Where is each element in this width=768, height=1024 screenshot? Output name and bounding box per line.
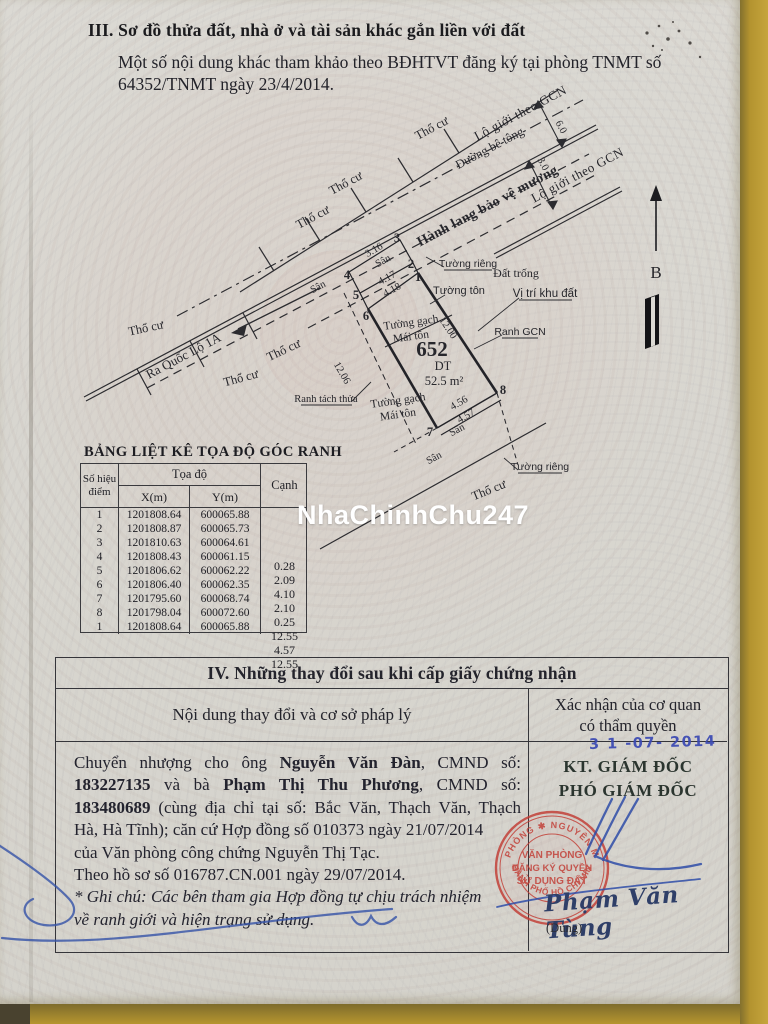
watermark: NhaChinhChu247 bbox=[297, 500, 529, 531]
col-x-header: X(m) bbox=[119, 486, 190, 508]
col-y-header: Y(m) bbox=[190, 486, 260, 508]
header-note-line2: 64352/TNMT ngày 23/4/2014. bbox=[118, 74, 678, 95]
kt-giam-doc-label: KT. GIÁM ĐỐC bbox=[529, 757, 727, 777]
page-fold-line bbox=[29, 82, 33, 1002]
signature-sub-name: (Dung) bbox=[546, 921, 582, 936]
header-note-line1: Một số nội dung khác tham khảo theo BĐHT… bbox=[118, 50, 678, 74]
transfer-text-line: Chuyển nhượng cho ông Nguyễn Văn Đàn, CM… bbox=[74, 752, 521, 774]
transfer-text-line: Theo hồ sơ số 016787.CN.001 ngày 29/07/2… bbox=[74, 864, 521, 886]
coordinate-table-header: Số hiệu điểm Tọa độ X(m) Y(m) Cạnh bbox=[81, 464, 306, 508]
transfer-text-line: 183480689 (cùng địa chỉ tại số: Bắc Văn,… bbox=[74, 797, 521, 819]
section-iv-title: IV. Những thay đổi sau khi cấp giấy chứn… bbox=[56, 658, 728, 689]
transfer-text-line: 183227135 và bà Phạm Thị Thu Phương, CMN… bbox=[74, 774, 521, 796]
col-coords-header: Tọa độ X(m) Y(m) bbox=[119, 464, 261, 507]
table-row: 31201810.63600064.61 bbox=[81, 536, 306, 550]
transfer-text-line: của Văn phòng công chứng Nguyễn Thị Tạc. bbox=[74, 842, 521, 864]
page-edge-right bbox=[740, 0, 768, 1024]
coordinate-table-title: BẢNG LIỆT KÊ TỌA ĐỘ GÓC RANH bbox=[84, 444, 342, 461]
page-edge-bottom bbox=[0, 1004, 740, 1024]
col-change-content-header: Nội dung thay đổi và cơ sở pháp lý bbox=[56, 689, 529, 742]
coordinate-table-body: 11201808.64600065.88 21201808.87600065.7… bbox=[81, 508, 306, 634]
section-iii-title: III. Sơ đồ thửa đất, nhà ở và tài sản kh… bbox=[88, 20, 688, 41]
note-line: về ranh giới và hiện trạng sử dụng. bbox=[74, 909, 521, 931]
table-row: 11201808.64600065.88 bbox=[81, 508, 306, 522]
approval-date-stamp: 3 1 -07- 2014 bbox=[589, 733, 739, 753]
table-row: 21201808.87600065.73 bbox=[81, 522, 306, 536]
note-line: * Ghi chú: Các bên tham gia Hợp đồng tự … bbox=[74, 886, 521, 908]
col-point-header: Số hiệu điểm bbox=[81, 464, 119, 507]
transfer-content: Chuyển nhượng cho ông Nguyễn Văn Đàn, CM… bbox=[56, 742, 529, 951]
photo-corner-shadow bbox=[0, 1004, 30, 1024]
certificate-photo: { "watermark": "NhaChinhChu247", "header… bbox=[0, 0, 768, 1024]
pho-giam-doc-label: PHÓ GIÁM ĐỐC bbox=[529, 781, 727, 801]
coordinate-table: Số hiệu điểm Tọa độ X(m) Y(m) Cạnh 11201… bbox=[80, 463, 307, 633]
transfer-text-line: Hà, Hà Tĩnh); căn cứ Hợp đồng số 010373 … bbox=[74, 819, 521, 841]
